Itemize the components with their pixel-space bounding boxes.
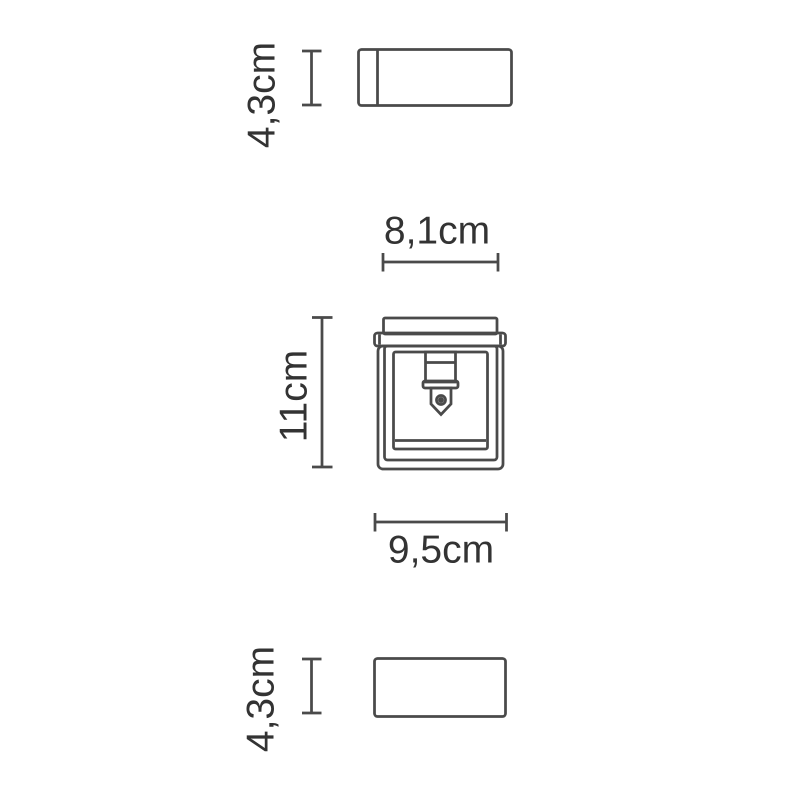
fixture-front-view [375, 318, 506, 469]
dim-label-lower-height: 4,3cm [242, 646, 281, 752]
dim-upper-height-line [302, 51, 322, 105]
dim-label-plate-width: 8,1cm [384, 212, 490, 251]
ceiling-plate [384, 318, 498, 334]
top-profile-view [359, 50, 512, 106]
dim-label-body-width: 9,5cm [388, 531, 494, 570]
dim-label-body-height: 11cm [275, 350, 314, 442]
dim-label-upper-height: 4,3cm [243, 42, 282, 148]
line-art [0, 0, 800, 800]
bulb-dot [439, 398, 442, 401]
frame-outer [378, 346, 503, 469]
dim-lower-height-line [302, 659, 322, 713]
dim-plate-width-line [383, 253, 498, 272]
lamp-socket [426, 352, 456, 382]
bottom-profile-view [375, 659, 506, 717]
dimension-drawing: 4,3cm 8,1cm 11cm 9,5cm 4,3cm [0, 0, 800, 800]
